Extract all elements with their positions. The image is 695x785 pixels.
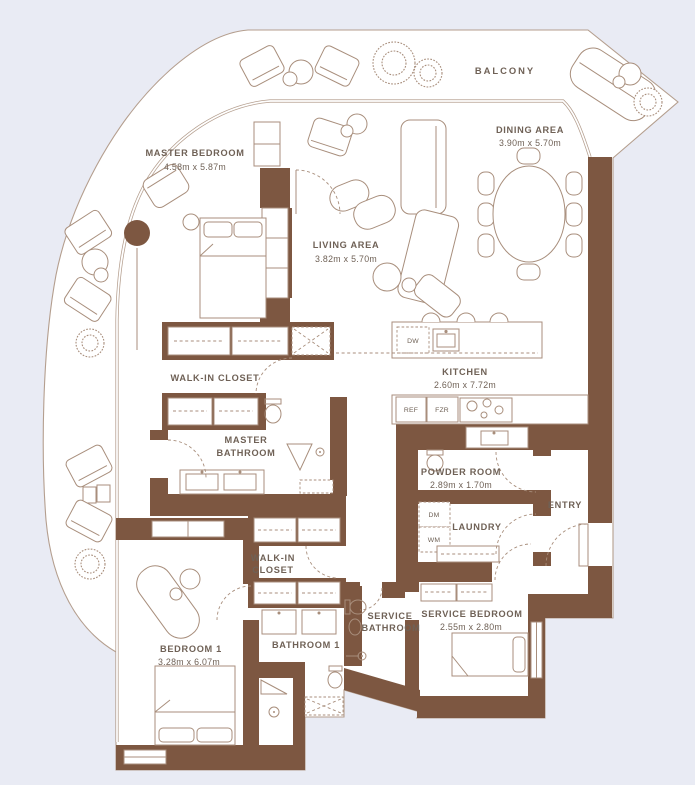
tv-console	[254, 122, 280, 166]
label-walk-in-closet-2-2: CLOSET	[252, 565, 293, 575]
wall-window-service	[531, 622, 542, 678]
label-dm: DM	[429, 512, 440, 519]
service-bedroom-wardrobe	[421, 584, 492, 601]
dims-bedroom-1: 3.28m x 6.07m	[158, 657, 220, 667]
round-table-small	[341, 125, 353, 137]
dims-powder-room: 2.89m x 1.70m	[430, 480, 492, 490]
label-powder-room: POWDER ROOM	[421, 467, 501, 477]
dims-kitchen: 2.60m x 7.72m	[434, 380, 496, 390]
kitchen-sink	[433, 329, 459, 351]
balcony-table-small	[283, 72, 297, 86]
floorplan-drawing: BALCONY MASTER BEDROOM 4.58m x 5.87m DIN…	[0, 0, 695, 785]
label-service-bathroom-2: BATHROOM	[361, 623, 420, 633]
dims-dining-area: 3.90m x 5.70m	[499, 138, 561, 148]
label-living-area: LIVING AREA	[313, 240, 380, 250]
label-walk-in-closet-2-1: WALK-IN	[251, 553, 295, 563]
dining-table	[493, 166, 565, 262]
label-master-bathroom-1: MASTER	[225, 435, 268, 445]
bedroom1-table	[180, 569, 200, 589]
label-kitchen: KITCHEN	[442, 367, 488, 377]
balcony-table-small	[613, 76, 625, 88]
powder-vanity	[466, 427, 528, 448]
balcony-table-small	[94, 268, 108, 282]
walk-in-closet-1-wardrobe	[168, 327, 330, 355]
dims-master-bedroom: 4.58m x 5.87m	[164, 162, 226, 172]
label-dining-area: DINING AREA	[496, 125, 564, 135]
pouf	[373, 263, 401, 291]
label-balcony: BALCONY	[475, 65, 535, 76]
dims-living-area: 3.82m x 5.70m	[315, 254, 377, 264]
nightstand	[183, 214, 199, 230]
master-vanity	[180, 470, 264, 494]
wall-window-bedroom1	[124, 750, 166, 764]
label-walk-in-closet-1: WALK-IN CLOSET	[171, 373, 260, 383]
service-bed	[452, 633, 528, 676]
plant	[373, 42, 415, 84]
entry-door-leaf	[579, 524, 588, 566]
label-entry: ENTRY	[548, 500, 582, 510]
label-service-bathroom-1: SERVICE	[367, 611, 412, 621]
bedroom1-table-small	[170, 588, 182, 600]
balcony-side-table	[97, 485, 110, 502]
label-ref: REF	[404, 407, 418, 414]
floorplan-page: BALCONY MASTER BEDROOM 4.58m x 5.87m DIN…	[0, 0, 695, 785]
laundry-counter	[437, 546, 499, 562]
label-bathroom-1: BATHROOM 1	[272, 640, 340, 650]
bath-bench	[300, 480, 333, 493]
plant	[75, 549, 105, 579]
bedroom1-bed	[155, 666, 235, 745]
label-bedroom-1: BEDROOM 1	[160, 644, 222, 654]
label-wm: WM	[428, 537, 441, 544]
label-master-bathroom-2: BATHROOM	[216, 448, 275, 458]
label-service-bedroom: SERVICE BEDROOM	[421, 609, 522, 619]
column	[124, 220, 150, 246]
plant	[634, 88, 662, 116]
bedroom-1-dresser	[152, 521, 224, 537]
balcony-side-table	[83, 487, 96, 503]
label-dw: DW	[407, 338, 419, 345]
master-bed	[200, 218, 266, 318]
service-bedroom-furniture	[452, 633, 528, 676]
label-laundry: LAUNDRY	[452, 522, 501, 532]
plant	[76, 329, 104, 357]
side-table	[402, 278, 416, 292]
label-fzr: FZR	[435, 407, 449, 414]
label-master-bedroom: MASTER BEDROOM	[145, 148, 244, 158]
dims-service-bedroom: 2.55m x 2.80m	[440, 622, 502, 632]
plant	[414, 59, 442, 87]
bathtub	[305, 697, 343, 715]
